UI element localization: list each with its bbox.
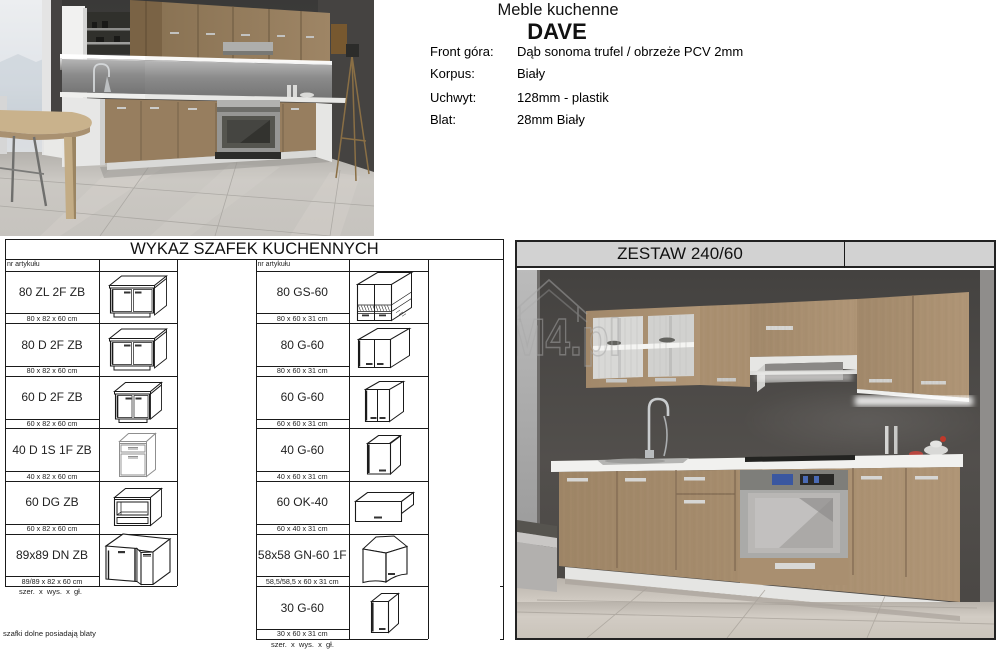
svg-text:M4.pl: M4.pl: [517, 309, 621, 367]
